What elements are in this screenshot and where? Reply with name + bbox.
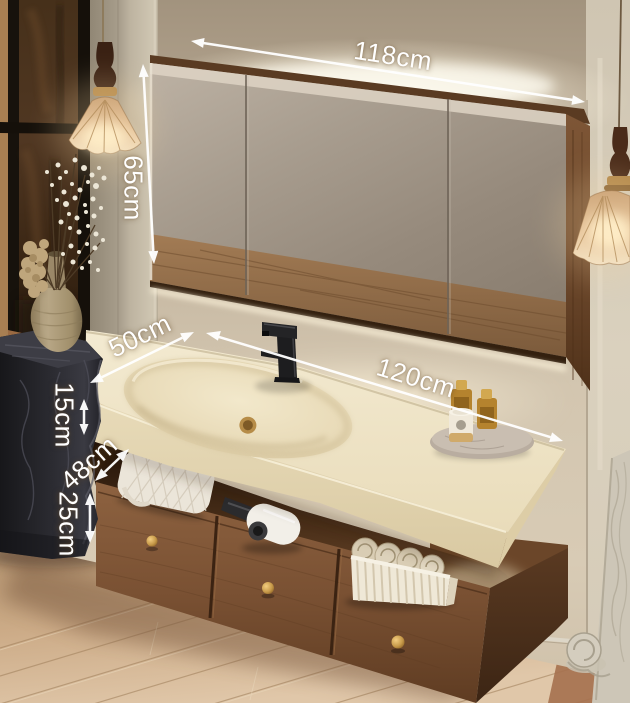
product-image-bathroom-vanity: 118cm 65cm 50cm 120cm 15cm 48cm 25cm [0, 0, 630, 703]
dimension-label-counter-thickness: 15cm [49, 382, 80, 448]
dimension-label-drawer-height: 25cm [53, 491, 84, 557]
dimension-label-mirror-height: 65cm [118, 155, 149, 221]
scene-illustration [0, 0, 630, 703]
